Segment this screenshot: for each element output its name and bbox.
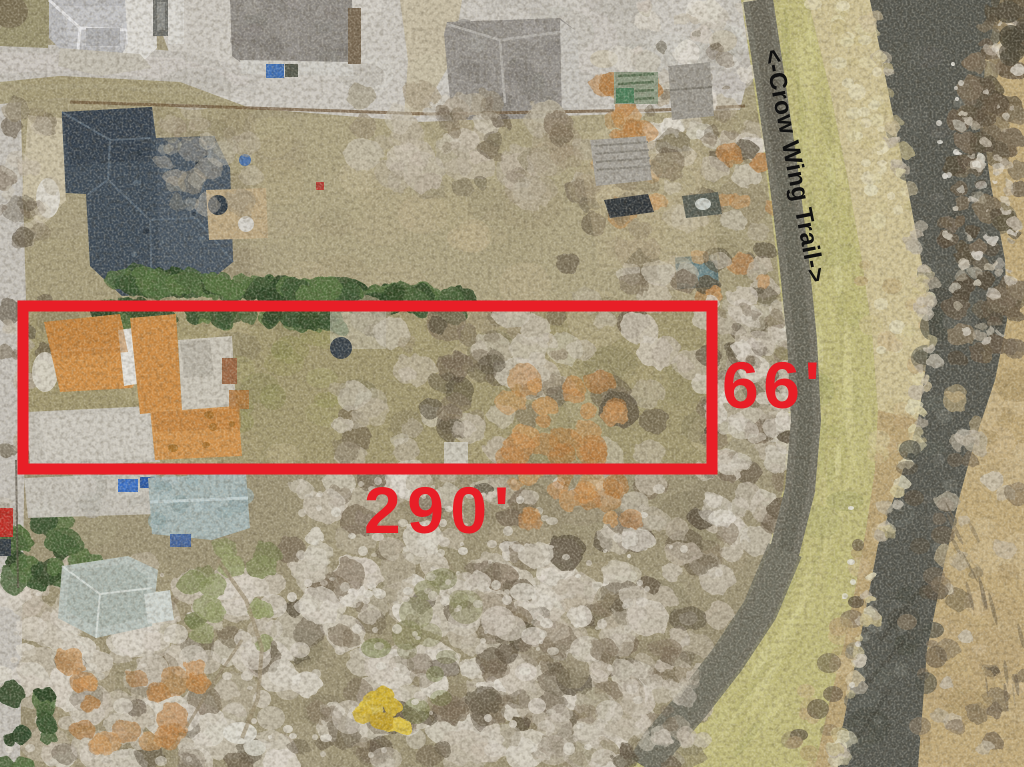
- svg-text:66': 66': [722, 348, 825, 422]
- svg-text:290': 290': [364, 473, 516, 547]
